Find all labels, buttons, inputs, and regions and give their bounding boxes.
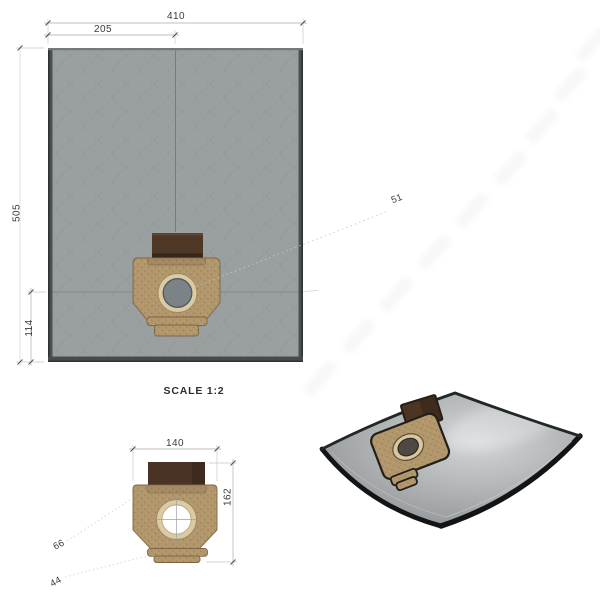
leader-66-label: 66 <box>51 538 66 553</box>
leader-51-label: 51 <box>390 192 405 206</box>
bag-edge-right-dark <box>301 48 303 362</box>
dim-114-label: 114 <box>24 319 35 336</box>
detail-view: 140 162 66 44 <box>48 438 237 590</box>
dim-505-label: 505 <box>12 204 23 222</box>
technical-drawing-page: 410 205 505 114 <box>0 0 600 600</box>
dim-505: 505 <box>12 44 45 366</box>
connector-tab-lower <box>155 325 199 336</box>
leader-line <box>65 556 148 577</box>
dim-140-label: 140 <box>166 438 184 449</box>
bag-edge-top <box>48 48 303 50</box>
leader-line <box>67 498 133 541</box>
iso-view <box>322 385 580 526</box>
drawing-svg: 410 205 505 114 <box>0 0 600 600</box>
dim-205-label: 205 <box>94 24 112 35</box>
connector-collar-bottom-shade <box>152 254 203 259</box>
detail-tab-lower <box>154 556 200 563</box>
flat-view: 410 205 505 114 <box>12 11 405 397</box>
scale-label: SCALE 1:2 <box>164 385 225 397</box>
detail-tab-upper <box>148 549 208 557</box>
connector-groove <box>148 258 206 265</box>
leader-66: 66 <box>51 498 133 552</box>
connector-port-hole <box>163 279 192 308</box>
fold-line-ext-right <box>303 291 318 292</box>
dim-114: 114 <box>24 288 46 366</box>
dim-410-label: 410 <box>167 11 185 22</box>
bag-edge-bottom-dark <box>48 361 303 362</box>
connector-collar-top-sheen <box>152 233 203 236</box>
connector-tab-upper <box>147 317 207 326</box>
dim-162-label: 162 <box>223 488 234 506</box>
dim-410: 410 <box>44 11 307 44</box>
bag-edge-left-dark <box>48 48 50 362</box>
leader-44-label: 44 <box>48 574 63 589</box>
dim-205: 205 <box>44 24 179 44</box>
leader-44: 44 <box>48 556 148 590</box>
detail-groove <box>147 485 206 493</box>
